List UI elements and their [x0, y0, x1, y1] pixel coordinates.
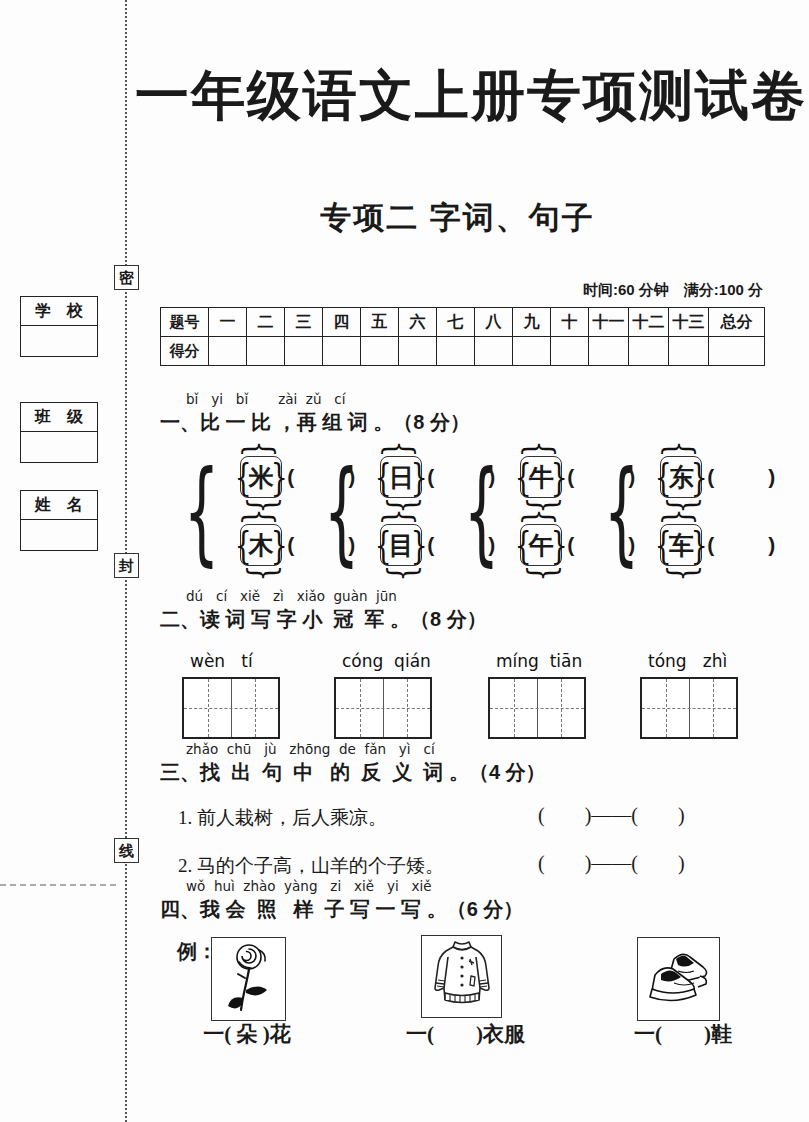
score-cell[interactable] — [323, 337, 361, 366]
frame-decoration: { — [382, 565, 420, 582]
open-paren: ( — [427, 465, 434, 489]
score-cell[interactable] — [247, 337, 285, 366]
score-row-label: 得分 — [161, 337, 209, 366]
word-pinyin: wèn tí — [190, 651, 280, 671]
writing-grid[interactable] — [488, 677, 586, 739]
compare-character: 米 — [249, 461, 274, 494]
character-box: { { { } 木 — [240, 524, 282, 566]
writing-grid[interactable] — [334, 677, 432, 739]
jacket-image — [421, 935, 502, 1018]
question-2-header: dú cí xiě zì xiǎo guàn jūn 二、读 词 写 字 小 冠… — [160, 588, 780, 633]
close-paren: ) — [768, 533, 775, 557]
score-header-cell: 四 — [323, 308, 361, 337]
class-label: 班 级 — [21, 403, 97, 432]
question-4-header: wǒ huì zhào yàng zi xiě yi xiě 四、我 会 照 样… — [160, 878, 780, 923]
score-header-cell: 题号 — [161, 308, 209, 337]
antonym-answer-blank-1[interactable]: ( )——( ) — [538, 804, 768, 827]
score-header-cell: 九 — [513, 308, 551, 337]
q1-title: 一、比 一 比 ，再 组 词 。（8 分） — [160, 409, 780, 436]
character-box: { { { } 日 — [380, 456, 422, 498]
score-header-cell: 十 — [551, 308, 589, 337]
score-cell[interactable] — [589, 337, 629, 366]
open-paren: ( — [427, 533, 434, 557]
class-input-area[interactable] — [21, 432, 97, 462]
character-box: { { { } 东 — [660, 456, 702, 498]
character-box: { { { } 车 — [660, 524, 702, 566]
school-input-area[interactable] — [21, 326, 97, 356]
class-field: 班 级 — [20, 402, 98, 463]
frame-decoration: { — [522, 565, 560, 582]
score-header-cell: 二 — [247, 308, 285, 337]
compare-character: 午 — [529, 529, 554, 562]
write-word-group-3: míng tiān — [488, 651, 586, 739]
open-paren: ( — [287, 465, 294, 489]
word-pinyin: cóng qián — [342, 651, 432, 671]
writing-grid[interactable] — [640, 677, 738, 739]
score-header-cell: 十一 — [589, 308, 629, 337]
score-cell[interactable] — [475, 337, 513, 366]
close-paren: ) — [768, 465, 775, 489]
seal-char-mi: 密 — [114, 265, 139, 290]
group-brace: { — [604, 452, 640, 570]
open-paren: ( — [567, 465, 574, 489]
group-brace: { — [324, 452, 360, 570]
character-box: { { { } 午 — [520, 524, 562, 566]
rose-caption: 一( 朵 )花 — [199, 1020, 295, 1048]
score-cell[interactable] — [709, 337, 765, 366]
word-answer-blank[interactable] — [714, 545, 768, 546]
compare-character: 日 — [389, 461, 414, 494]
compare-character: 木 — [249, 529, 274, 562]
open-paren: ( — [707, 465, 714, 489]
seal-char-xian: 线 — [114, 838, 139, 863]
question-3-header: zhǎo chū jù zhōng de fǎn yì cí 三、找 出 句 中… — [160, 741, 780, 786]
page-subtitle: 专项二 字词、句子 — [135, 197, 780, 239]
score-cell[interactable] — [513, 337, 551, 366]
compare-character: 东 — [669, 461, 694, 494]
character-box: { { { } 目 — [380, 524, 422, 566]
school-label: 学 校 — [21, 297, 97, 326]
compare-character: 牛 — [529, 461, 554, 494]
q3-title: 三、找 出 句 中 的 反 义 词 。（4 分） — [160, 759, 780, 786]
score-cell[interactable] — [285, 337, 323, 366]
writing-grid[interactable] — [182, 677, 280, 739]
score-header-cell: 一 — [209, 308, 247, 337]
shoes-image — [637, 937, 720, 1021]
sentence-1: 1. 前人栽树，后人乘凉。 — [178, 805, 387, 831]
antonym-answer-blank-2[interactable]: ( )——( ) — [538, 852, 768, 875]
score-header-cell: 七 — [437, 308, 475, 337]
score-cell[interactable] — [437, 337, 475, 366]
word-pinyin: tóng zhì — [648, 651, 738, 671]
group-brace: { — [464, 452, 500, 570]
q4-pinyin: wǒ huì zhào yàng zi xiě yi xiě — [186, 878, 780, 894]
score-header-cell: 十二 — [629, 308, 669, 337]
shoes-caption: 一( )鞋 — [632, 1020, 734, 1048]
frame-decoration: { — [662, 565, 700, 582]
score-table-header-row: 题号 一 二 三 四 五 六 七 八 九 十 十一 十二 十三 总分 — [161, 308, 765, 337]
school-field: 学 校 — [20, 296, 98, 357]
name-label: 姓 名 — [21, 491, 97, 520]
q4-title: 四、我 会 照 样 子 写 一 写 。（6 分） — [160, 896, 780, 923]
score-header-cell: 六 — [399, 308, 437, 337]
page-title: 一年级语文上册专项测试卷 — [135, 60, 780, 133]
score-cell[interactable] — [669, 337, 709, 366]
score-table: 题号 一 二 三 四 五 六 七 八 九 十 十一 十二 十三 总分 得分 — [160, 307, 765, 366]
group-brace: { — [184, 452, 220, 570]
character-box: { { { } 牛 — [520, 456, 562, 498]
q2-title: 二、读 词 写 字 小 冠 军 。（8 分） — [160, 606, 780, 633]
q3-pinyin: zhǎo chū jù zhōng de fǎn yì cí — [186, 741, 780, 757]
name-field: 姓 名 — [20, 490, 98, 551]
rose-image — [211, 937, 286, 1021]
question-1-header: bǐ yi bǐ zài zǔ cí 一、比 一 比 ，再 组 词 。（8 分） — [160, 391, 780, 436]
exam-time-info: 时间:60 分钟 满分:100 分 — [150, 281, 763, 300]
q2-pinyin: dú cí xiě zì xiǎo guàn jūn — [186, 588, 780, 604]
score-cell[interactable] — [361, 337, 399, 366]
write-word-group-4: tóng zhì — [640, 651, 738, 739]
name-input-area[interactable] — [21, 520, 97, 550]
compare-character: 目 — [389, 529, 414, 562]
open-paren: ( — [287, 533, 294, 557]
fold-dashed-line — [0, 884, 116, 886]
write-word-group-2: cóng qián — [334, 651, 432, 739]
sentence-2: 2. 马的个子高，山羊的个子矮。 — [178, 853, 444, 879]
jacket-caption: 一( )衣服 — [406, 1020, 516, 1048]
frame-decoration: { — [242, 565, 280, 582]
score-header-cell: 五 — [361, 308, 399, 337]
word-answer-blank[interactable] — [714, 477, 768, 478]
character-box: { { { } 米 — [240, 456, 282, 498]
score-cell[interactable] — [399, 337, 437, 366]
score-cell[interactable] — [629, 337, 669, 366]
score-header-cell: 总分 — [709, 308, 765, 337]
score-table-score-row: 得分 — [161, 337, 765, 366]
score-cell[interactable] — [551, 337, 589, 366]
score-cell[interactable] — [209, 337, 247, 366]
score-header-cell: 十三 — [669, 308, 709, 337]
compare-group-4: { { { { } 东 ( ) { { { } 车 ( ) — [586, 450, 775, 572]
open-paren: ( — [707, 533, 714, 557]
open-paren: ( — [567, 533, 574, 557]
seal-char-feng: 封 — [114, 553, 139, 578]
q1-pinyin: bǐ yi bǐ zài zǔ cí — [186, 391, 780, 407]
score-header-cell: 八 — [475, 308, 513, 337]
score-header-cell: 三 — [285, 308, 323, 337]
word-pinyin: míng tiān — [496, 651, 586, 671]
write-word-group-1: wèn tí — [182, 651, 280, 739]
compare-character: 车 — [669, 529, 694, 562]
